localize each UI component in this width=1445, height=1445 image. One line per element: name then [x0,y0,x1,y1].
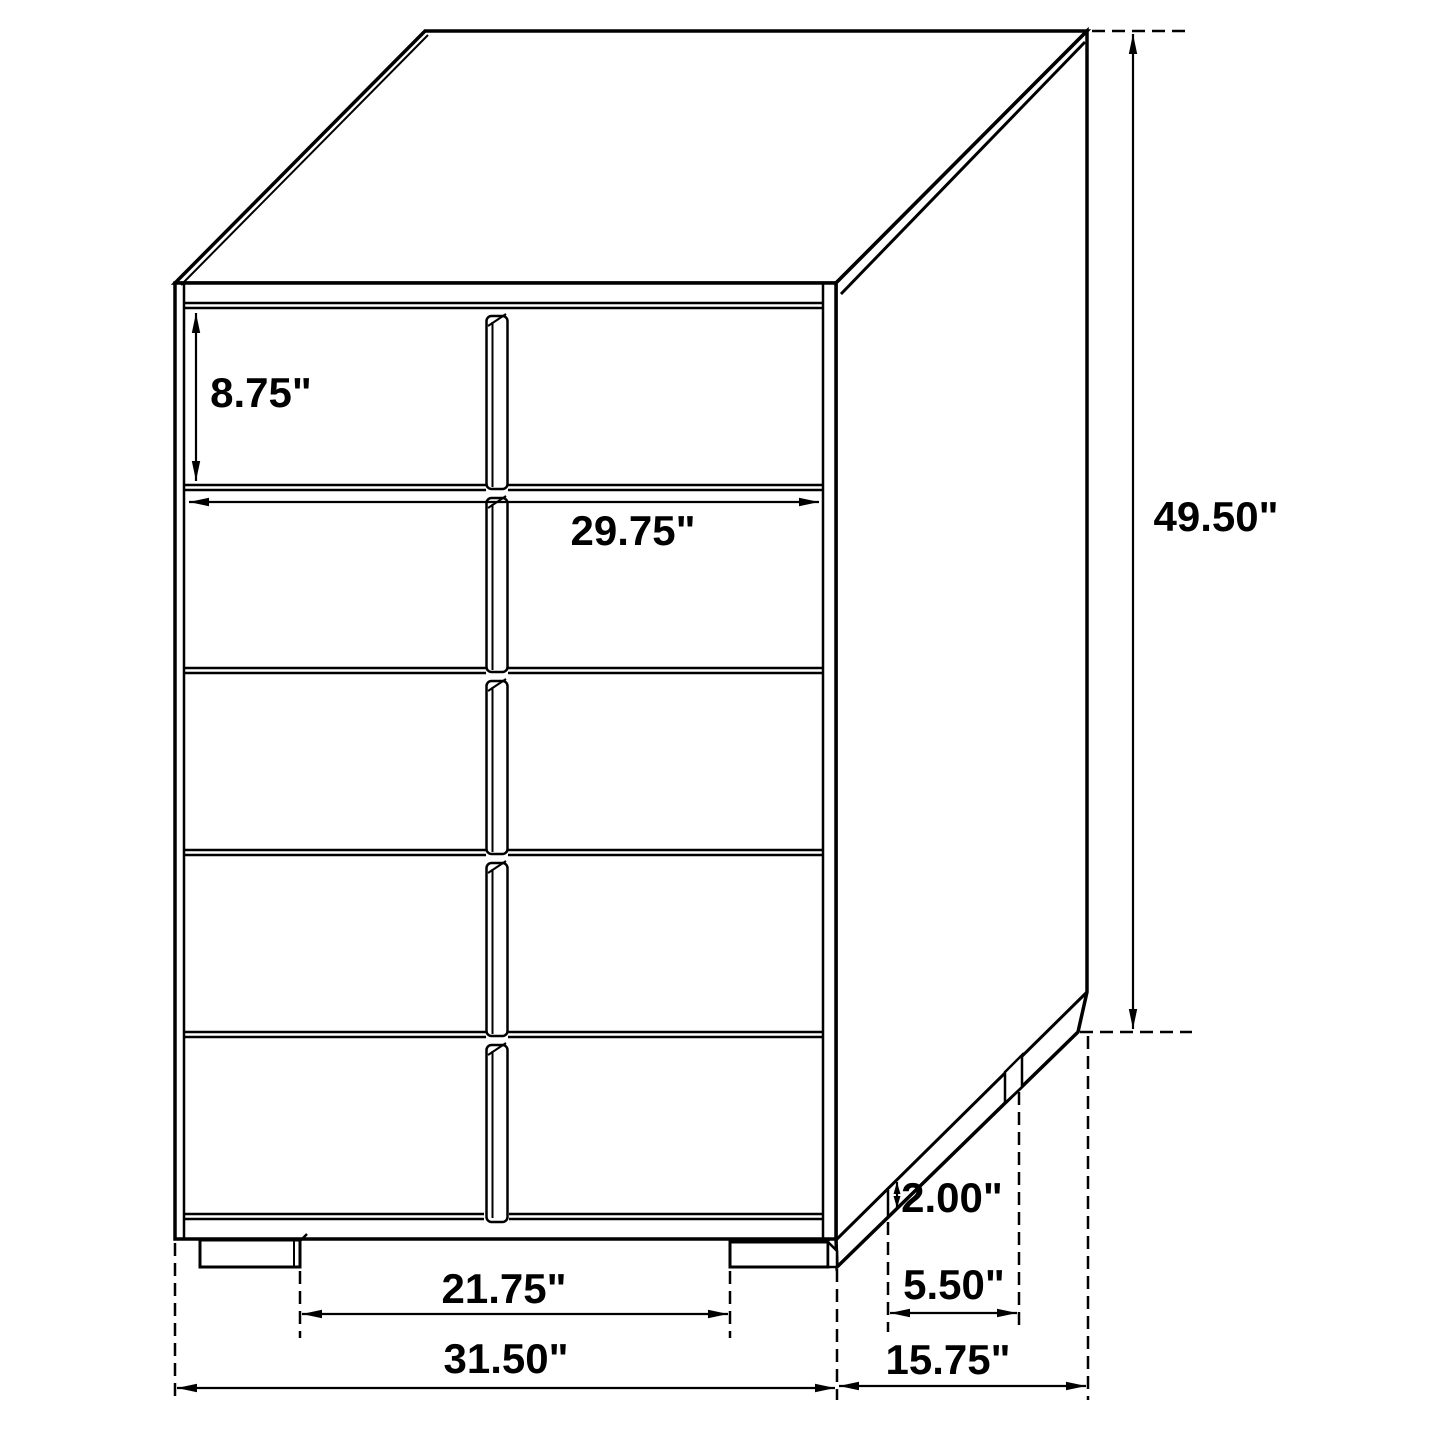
drawer-1-handle [487,316,508,489]
dim-label-overall-height: 49.50" [1153,493,1278,540]
drawer-2-handle [487,498,508,672]
dim-label-leg-setback: 5.50" [903,1261,1005,1308]
dim-label-overall-width: 31.50" [443,1335,568,1382]
dimension-diagram: 8.75" 29.75" 49.50" 2.00" 5.50" 21.75" 3… [0,0,1445,1445]
chest-body [175,31,1087,1267]
drawer-handles [487,314,508,1222]
drawer-4-handle [487,863,508,1036]
dim-label-drawer-height: 8.75" [210,369,312,416]
dim-label-leg-height: 2.00" [901,1174,1003,1221]
front-left-leg [200,1240,300,1267]
dim-label-overall-depth: 15.75" [885,1336,1010,1383]
drawer-5-handle [487,1045,508,1222]
chest-drawing: 8.75" 29.75" 49.50" 2.00" 5.50" 21.75" 3… [0,0,1445,1445]
dim-label-drawer-width: 29.75" [570,507,695,554]
drawer-3-handle [487,681,508,854]
front-right-leg [730,1242,828,1267]
dim-label-leg-clearance: 21.75" [441,1265,566,1312]
